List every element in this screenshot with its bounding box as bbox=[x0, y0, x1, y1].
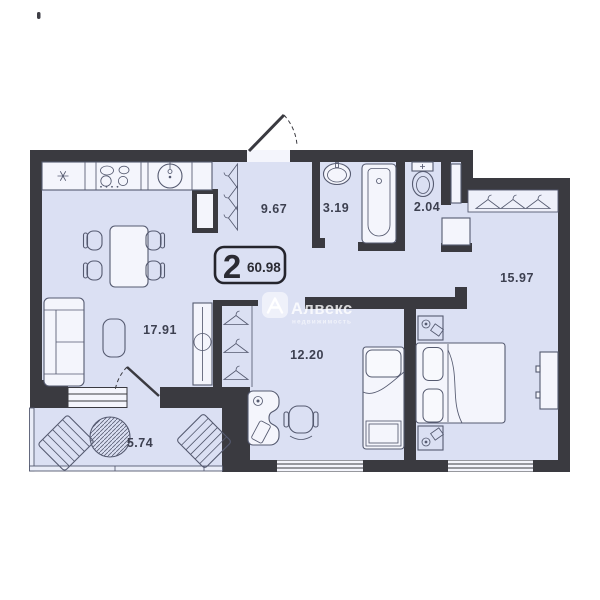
room-area-label-living-room: 17.91 bbox=[143, 323, 177, 337]
balcony-table bbox=[90, 417, 130, 457]
hall-cabinet bbox=[442, 218, 470, 245]
entry-threshold bbox=[247, 150, 290, 162]
artifact-mark bbox=[37, 12, 41, 19]
bedroom-wardrobe bbox=[468, 190, 558, 212]
kitchen-counter bbox=[42, 162, 212, 191]
brand-tagline: недвижимость bbox=[292, 319, 352, 326]
room-area-label-balcony: 5.74 bbox=[127, 436, 153, 450]
brand-logo-icon bbox=[262, 292, 288, 318]
room-area-label-room: 12.20 bbox=[290, 348, 324, 362]
ventilation-shaft-toilet bbox=[451, 164, 461, 203]
brand-name: Алвекс bbox=[291, 300, 353, 318]
room-window bbox=[277, 461, 363, 472]
double-bed bbox=[416, 343, 505, 423]
room-area-label-toilet: 2.04 bbox=[414, 200, 440, 214]
room-area-label-hallway: 9.67 bbox=[261, 202, 287, 216]
total-area: 60.98 bbox=[247, 260, 281, 275]
floor-plan-page: 9.67 3.19 2.04 15.97 17.91 12.20 5.74 2 … bbox=[0, 0, 600, 600]
dining-table bbox=[110, 226, 148, 287]
floor-plan: 9.67 3.19 2.04 15.97 17.91 12.20 5.74 2 … bbox=[0, 0, 600, 600]
apartment-badge: 2 60.98 bbox=[215, 247, 285, 285]
bedroom-window bbox=[448, 461, 533, 472]
balcony-window bbox=[68, 388, 127, 408]
bathtub-icon bbox=[362, 164, 396, 243]
room-area-label-bedroom: 15.97 bbox=[500, 271, 534, 285]
ventilation-shaft-hall bbox=[192, 189, 218, 233]
room-area-label-bathroom: 3.19 bbox=[323, 201, 349, 215]
entry-door bbox=[249, 115, 297, 151]
rooms-count: 2 bbox=[223, 248, 241, 285]
mirror-wardrobe bbox=[193, 303, 212, 385]
single-bed bbox=[363, 347, 404, 449]
sofa bbox=[44, 298, 84, 386]
